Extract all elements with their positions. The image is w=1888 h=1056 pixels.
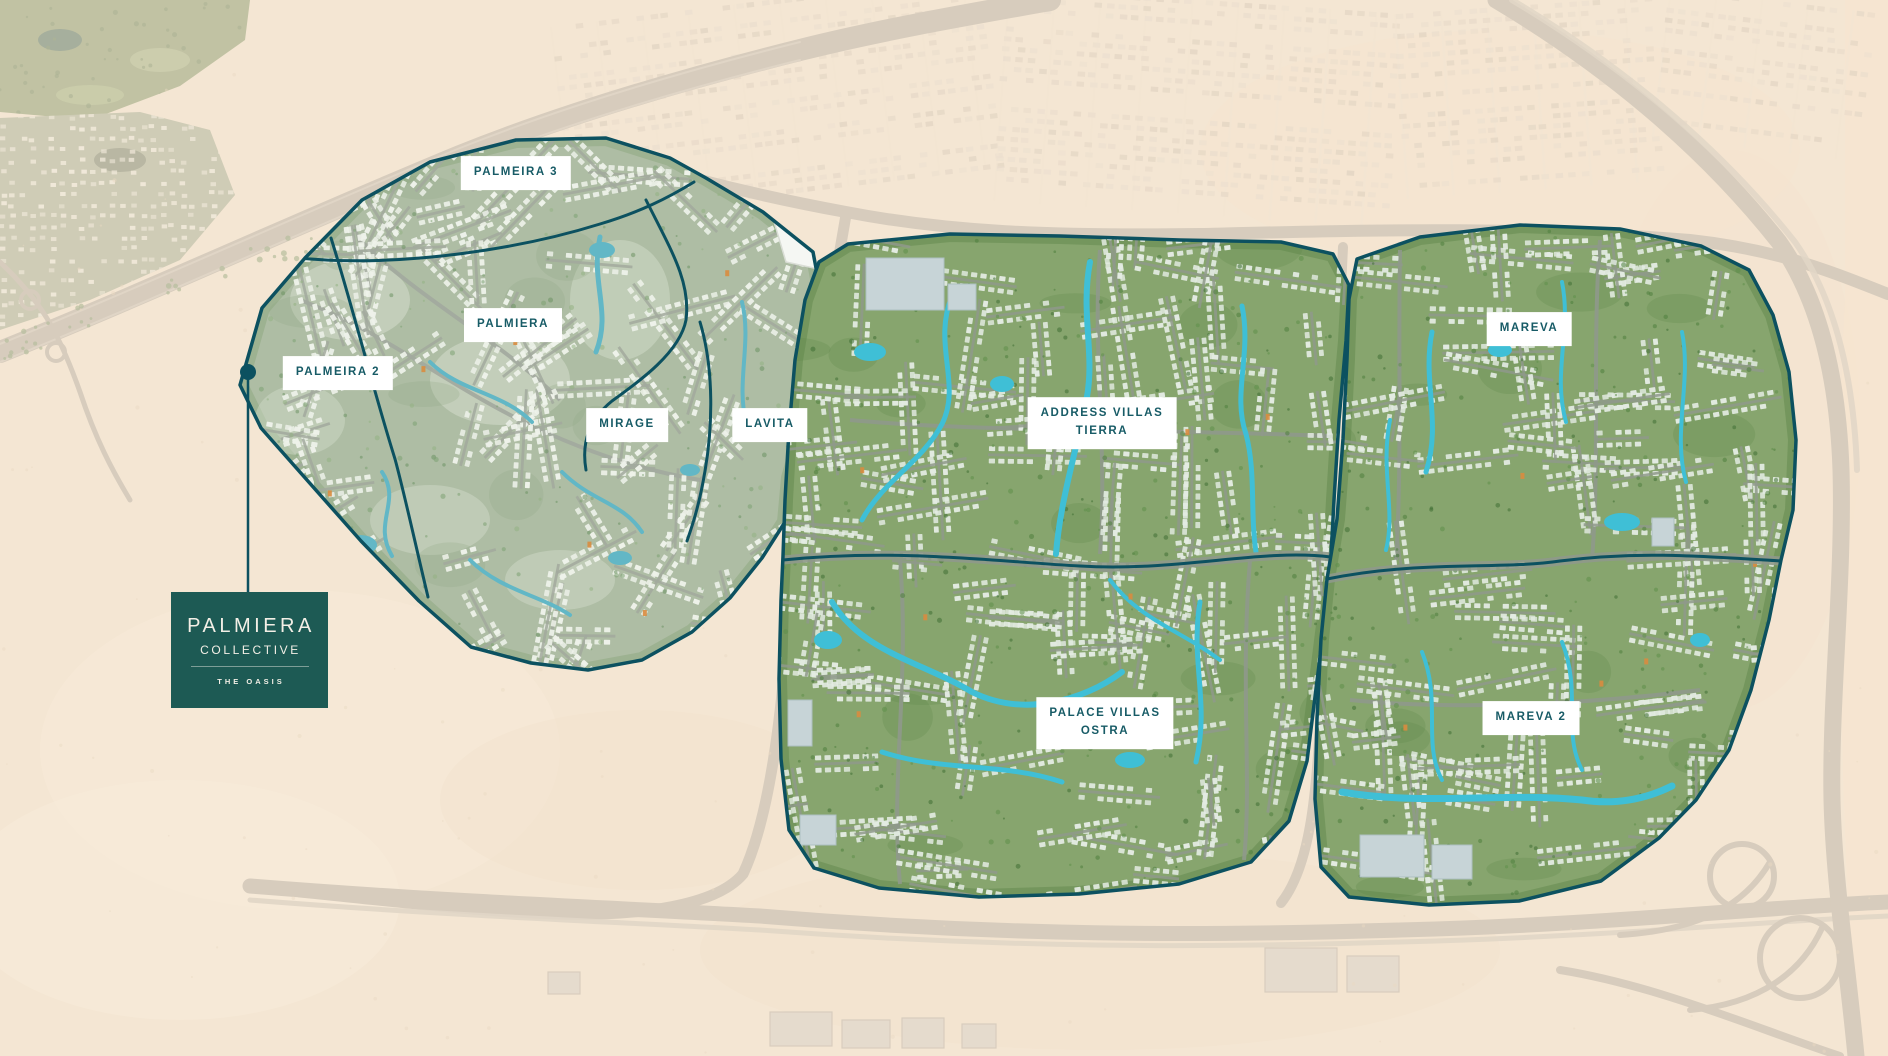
logo-divider — [191, 666, 309, 667]
community-label-address-villas-tierra[interactable]: ADDRESS VILLAS TIERRA — [1028, 397, 1177, 449]
map-canvas — [0, 0, 1888, 1056]
logo-tagline: THE OASIS — [217, 677, 284, 686]
community-label-lavita[interactable]: LAVITA — [732, 408, 807, 442]
logo-collection-wordmark: COLLECTIVE — [200, 643, 301, 657]
community-label-palmeira-3[interactable]: PALMEIRA 3 — [461, 156, 571, 190]
community-label-palmeira-2[interactable]: PALMEIRA 2 — [283, 356, 393, 390]
community-label-palace-villas-ostra[interactable]: PALACE VILLAS OSTRA — [1036, 697, 1173, 749]
community-label-mirage[interactable]: MIRAGE — [586, 408, 668, 442]
logo-brand-wordmark: PALMIERA — [187, 615, 315, 638]
community-label-mareva-2[interactable]: MAREVA 2 — [1483, 701, 1580, 735]
project-logo-card: PALMIERA COLLECTIVE THE OASIS — [171, 592, 328, 708]
masterplan-map: PALMEIRA 3 PALMIERA PALMEIRA 2 MIRAGE LA… — [0, 0, 1888, 1056]
community-label-mareva[interactable]: MAREVA — [1487, 312, 1572, 346]
community-label-palmiera[interactable]: PALMIERA — [464, 308, 562, 342]
